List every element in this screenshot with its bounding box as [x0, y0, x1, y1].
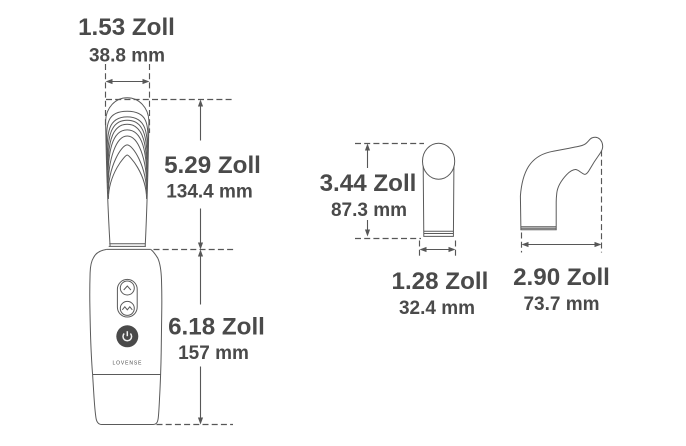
svg-text:73.7 mm: 73.7 mm	[523, 294, 599, 315]
svg-text:2.90 Zoll: 2.90 Zoll	[513, 264, 610, 291]
svg-text:1.28 Zoll: 1.28 Zoll	[392, 268, 489, 295]
svg-text:32.4 mm: 32.4 mm	[399, 298, 475, 319]
svg-text:1.53 Zoll: 1.53 Zoll	[78, 14, 175, 41]
svg-text:5.29 Zoll: 5.29 Zoll	[164, 152, 261, 179]
svg-text:38.8 mm: 38.8 mm	[89, 46, 165, 67]
svg-text:87.3 mm: 87.3 mm	[331, 200, 407, 221]
svg-text:6.18 Zoll: 6.18 Zoll	[168, 314, 265, 341]
svg-text:LOVENSE: LOVENSE	[112, 361, 142, 367]
svg-text:157 mm: 157 mm	[178, 343, 249, 364]
svg-text:3.44 Zoll: 3.44 Zoll	[320, 170, 417, 197]
svg-text:134.4 mm: 134.4 mm	[166, 182, 253, 203]
